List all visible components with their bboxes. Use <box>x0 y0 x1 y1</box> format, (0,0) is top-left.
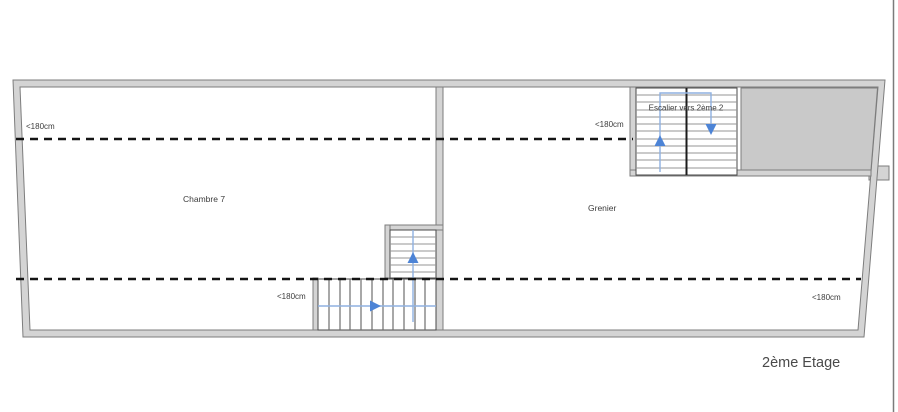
divider-wall <box>436 87 443 330</box>
floor-title: 2ème Etage <box>762 355 840 371</box>
height-annotation: <180cm <box>812 293 841 302</box>
room-label-grenier: Grenier <box>588 203 617 213</box>
floorplan-drawing: Escalier vers 2ème 2 <box>0 0 898 412</box>
staircase-lower[interactable] <box>318 230 436 330</box>
stair-upper-flight-top-wall <box>385 225 443 230</box>
height-annotation: <180cm <box>595 120 624 129</box>
staircase-to-2eme[interactable]: Escalier vers 2ème 2 <box>636 88 737 175</box>
gray-zone[interactable] <box>741 88 878 170</box>
stair-lower-flight-left-wall <box>313 278 318 330</box>
stair-enclosure-left-wall <box>630 87 636 176</box>
stair-label: Escalier vers 2ème 2 <box>649 104 724 113</box>
height-annotation: <180cm <box>26 122 55 131</box>
stair-upper-flight-left-wall <box>385 225 390 278</box>
height-annotation: <180cm <box>277 292 306 301</box>
floorplan-canvas[interactable]: Escalier vers 2ème 2 <box>0 0 898 412</box>
room-label-chambre-7: Chambre 7 <box>183 194 225 204</box>
